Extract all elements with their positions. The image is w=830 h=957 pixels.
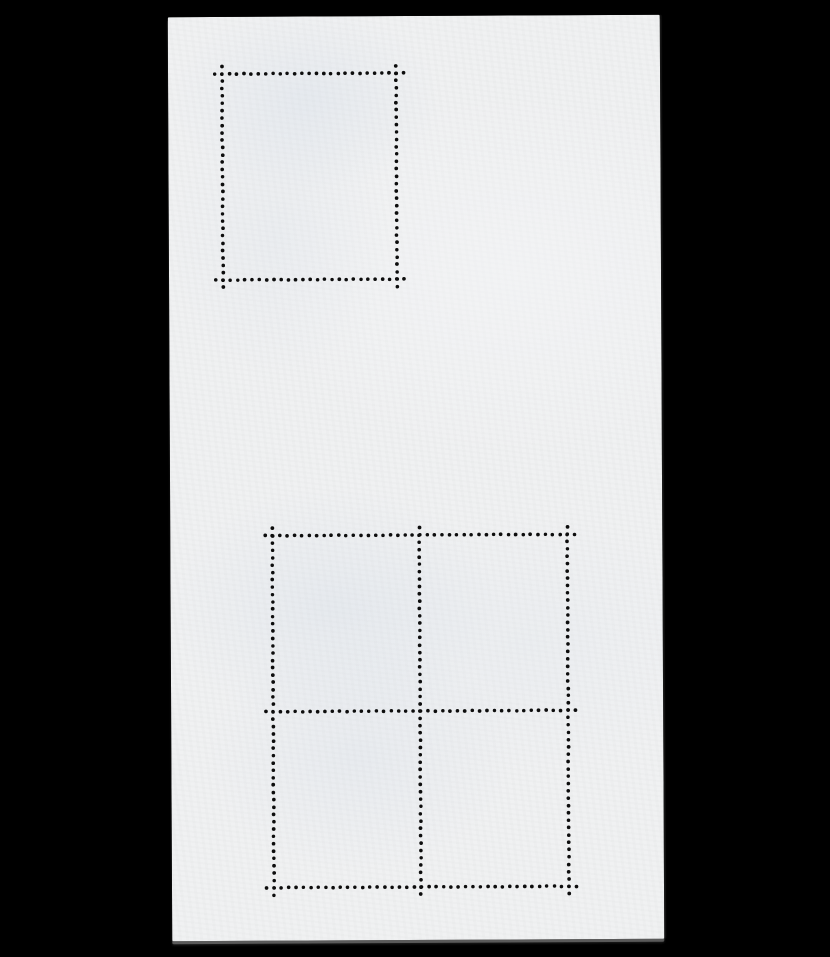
- single-stamp-outline: [213, 64, 407, 290]
- stamp-sheet-paper: [168, 15, 665, 941]
- perforation-holes: [168, 15, 665, 941]
- quad-stamp-block-outline: [263, 525, 578, 897]
- photo-background: [0, 0, 830, 957]
